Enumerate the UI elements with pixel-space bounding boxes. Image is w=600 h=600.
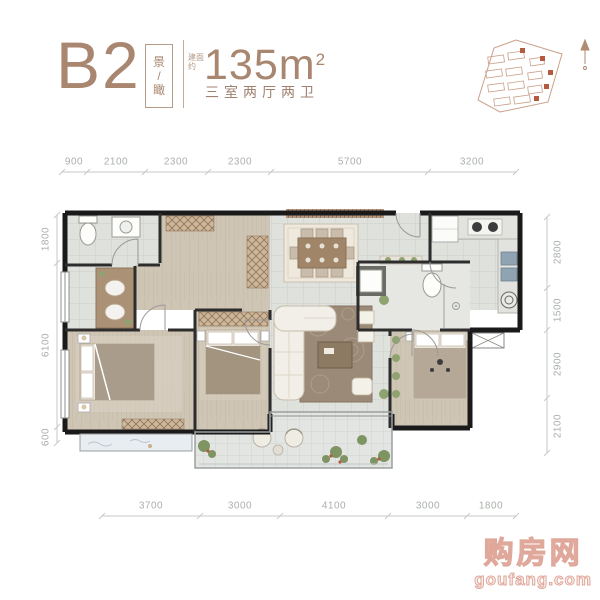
dim-left-3: 600 [41,428,52,446]
ac-unit-box [472,333,504,348]
area-superscript: 2 [316,50,325,69]
north-arrow-icon [581,40,589,70]
bedroom2-bed [197,312,269,400]
dim-top-3: 2300 [164,157,188,168]
master-bath-vanity [96,268,134,328]
dim-top-2: 2100 [104,157,128,168]
dim-top-5: 5700 [338,157,362,168]
dim-bottom-1: 3700 [139,501,163,512]
master-bay-window [80,434,192,451]
washing-machine [501,292,517,308]
area-value: 135m2 [204,38,325,87]
dim-right-1: 2800 [553,240,564,264]
dim-bottom-3: 4100 [322,501,346,512]
dim-bottom-4: 3000 [416,501,440,512]
site-plan-minimap [478,40,589,112]
tag-char: 瞰 [153,84,165,97]
bedroom3-bed [392,332,469,400]
dim-left-2: 6100 [41,333,52,357]
plan-tag-box: 景 / 瞰 [145,44,173,108]
living-room-set [274,295,389,402]
tag-slash: / [157,70,160,83]
area-prefix: 建面约 [188,53,204,71]
header-divider [183,40,184,108]
dim-bottom-5: 1800 [479,501,503,512]
plan-code: B2 [56,32,141,98]
sink [501,252,517,265]
layout-description: 三室两厅两卫 [205,82,319,102]
tag-char: 景 [153,56,165,69]
dim-left-1: 1800 [41,227,52,251]
dim-top-1: 900 [65,157,83,168]
entry-wardrobe [166,216,214,231]
floorplan-page: B2 景 / 瞰 建面约 135m2 三室两厅两卫 900 2100 2300 … [0,0,600,600]
dim-top-6: 3200 [460,157,484,168]
dim-bottom-2: 3000 [228,501,252,512]
dim-right-3: 2900 [553,352,564,376]
dim-right-4: 2100 [553,414,564,438]
dim-right-2: 1500 [553,298,564,322]
hall-closet [247,236,268,288]
dim-top-4: 2300 [228,157,252,168]
